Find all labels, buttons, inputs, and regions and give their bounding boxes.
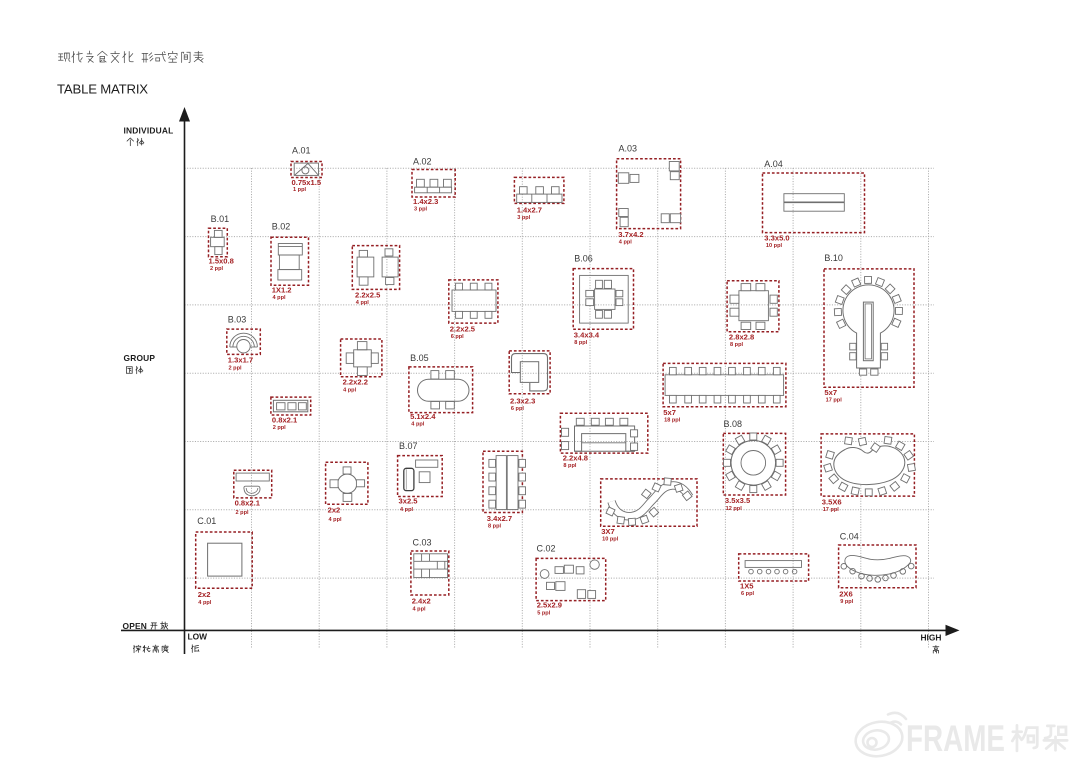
svg-text:2.5x2.9: 2.5x2.9: [537, 601, 562, 610]
svg-text:C.02: C.02: [537, 544, 556, 554]
svg-text:2x2: 2x2: [198, 590, 211, 599]
svg-text:B.10: B.10: [824, 253, 843, 263]
svg-text:4 ppl: 4 ppl: [343, 387, 356, 393]
svg-text:A.01: A.01: [292, 146, 311, 156]
svg-text:TABLE MATRIX: TABLE MATRIX: [57, 82, 148, 97]
svg-text:3.5x3.5: 3.5x3.5: [725, 496, 751, 505]
svg-text:2 ppl: 2 ppl: [236, 510, 249, 516]
svg-text:5x7: 5x7: [824, 388, 837, 397]
svg-text:GROUP: GROUP: [124, 353, 156, 363]
svg-text:8 ppl: 8 ppl: [488, 523, 501, 529]
svg-text:2.2x2.5: 2.2x2.5: [355, 291, 381, 300]
svg-text:2.2x2.2: 2.2x2.2: [343, 378, 368, 387]
svg-text:1.4x2.7: 1.4x2.7: [517, 206, 542, 215]
svg-text:A.04: A.04: [764, 159, 783, 169]
svg-text:3.4x2.7: 3.4x2.7: [487, 514, 512, 523]
svg-text:1.3x1.7: 1.3x1.7: [228, 356, 253, 365]
svg-text:8 ppl: 8 ppl: [574, 340, 587, 346]
svg-text:4 ppl: 4 ppl: [411, 421, 424, 427]
svg-text:3.3x5.0: 3.3x5.0: [764, 234, 789, 243]
svg-text:3.4x3.4: 3.4x3.4: [574, 330, 600, 339]
svg-text:0.8x2.1: 0.8x2.1: [272, 416, 298, 425]
svg-text:4 ppl: 4 ppl: [356, 300, 369, 306]
svg-text:1.5x0.8: 1.5x0.8: [209, 257, 234, 266]
svg-text:18 ppl: 18 ppl: [664, 418, 681, 424]
svg-text:10 ppl: 10 ppl: [602, 536, 619, 542]
svg-text:5x7: 5x7: [663, 408, 676, 417]
svg-text:2x2: 2x2: [328, 506, 341, 515]
svg-text:0.75x1.5: 0.75x1.5: [292, 178, 322, 187]
svg-text:C.04: C.04: [840, 531, 859, 541]
svg-text:3.7x4.2: 3.7x4.2: [618, 230, 643, 239]
svg-text:1.4x2.3: 1.4x2.3: [413, 197, 438, 206]
svg-text:8 ppl: 8 ppl: [730, 342, 743, 348]
svg-text:4 ppl: 4 ppl: [619, 240, 632, 246]
svg-text:5 ppl: 5 ppl: [537, 611, 550, 617]
svg-text:4 ppl: 4 ppl: [400, 507, 413, 513]
svg-text:2.8x2.8: 2.8x2.8: [729, 332, 754, 341]
svg-text:INDIVIDUAL: INDIVIDUAL: [124, 126, 174, 136]
svg-text:OPEN: OPEN: [123, 621, 148, 631]
svg-text:C.01: C.01: [197, 516, 216, 526]
svg-text:3 ppl: 3 ppl: [517, 215, 530, 221]
svg-text:6 ppl: 6 ppl: [511, 406, 524, 412]
svg-text:6 ppl: 6 ppl: [741, 591, 754, 597]
svg-text:A.02: A.02: [413, 157, 432, 167]
svg-text:B.01: B.01: [211, 214, 230, 224]
svg-text:3 ppl: 3 ppl: [414, 207, 427, 213]
svg-text:LOW: LOW: [188, 632, 208, 642]
svg-text:4 ppl: 4 ppl: [413, 606, 426, 612]
svg-text:FRAME: FRAME: [906, 718, 1005, 759]
svg-text:17 ppl: 17 ppl: [826, 398, 843, 404]
svg-text:2 ppl: 2 ppl: [273, 425, 286, 431]
svg-text:B.05: B.05: [410, 353, 429, 363]
svg-text:2.2x4.8: 2.2x4.8: [563, 454, 588, 463]
svg-text:4 ppl: 4 ppl: [329, 517, 342, 523]
svg-text:2.3x2.3: 2.3x2.3: [510, 396, 535, 405]
svg-text:B.06: B.06: [574, 254, 593, 264]
svg-text:3X7: 3X7: [601, 527, 615, 536]
svg-text:6 ppl: 6 ppl: [451, 334, 464, 340]
svg-text:17 ppl: 17 ppl: [823, 507, 840, 513]
svg-text:2 ppl: 2 ppl: [229, 365, 242, 371]
svg-text:1 ppl: 1 ppl: [293, 187, 306, 193]
svg-text:A.03: A.03: [619, 144, 638, 154]
svg-text:B.07: B.07: [399, 441, 418, 451]
svg-text:8 ppl: 8 ppl: [563, 463, 576, 469]
svg-text:C.03: C.03: [413, 538, 432, 548]
svg-text:1X1.2: 1X1.2: [272, 286, 292, 295]
svg-text:12 ppl: 12 ppl: [726, 506, 743, 512]
svg-text:0.8x2.1: 0.8x2.1: [235, 498, 261, 507]
svg-text:2.4x2: 2.4x2: [412, 597, 431, 606]
svg-text:2 ppl: 2 ppl: [210, 266, 223, 272]
svg-text:4 ppl: 4 ppl: [273, 295, 286, 301]
svg-text:B.02: B.02: [272, 222, 291, 232]
svg-text:5.1x2.4: 5.1x2.4: [410, 412, 436, 421]
svg-text:2.2x2.5: 2.2x2.5: [450, 325, 476, 334]
svg-text:HIGH: HIGH: [921, 633, 942, 643]
svg-text:2X6: 2X6: [839, 590, 853, 599]
svg-text:B.03: B.03: [228, 315, 247, 325]
svg-text:4 ppl: 4 ppl: [198, 600, 211, 606]
svg-text:B.08: B.08: [724, 419, 743, 429]
svg-text:3x2.5: 3x2.5: [399, 496, 419, 505]
svg-text:9 ppl: 9 ppl: [840, 599, 853, 605]
svg-text:10 ppl: 10 ppl: [766, 243, 783, 249]
svg-text:3.5X6: 3.5X6: [822, 497, 842, 506]
svg-text:1X5: 1X5: [740, 581, 754, 590]
